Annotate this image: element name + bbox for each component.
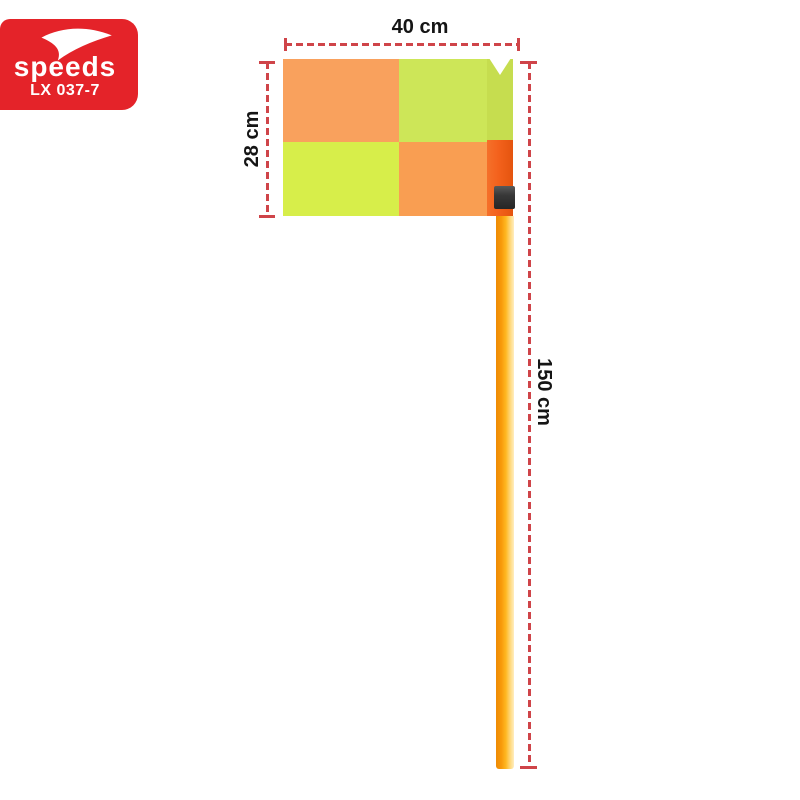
corner-flag: [283, 59, 513, 216]
product-image: speeds LX 037-7 40 cm 28 cm 150 cm: [0, 0, 800, 800]
brand-model-number: LX 037-7: [0, 83, 130, 99]
flag-quadrant-bottom-right: [399, 142, 487, 216]
pole-height-label: 150 cm: [533, 327, 555, 457]
height-dimension-tick-top: [259, 61, 275, 64]
flag-clip-band: [494, 186, 515, 209]
brand-name: speeds: [0, 53, 130, 81]
brand-logo-badge: speeds LX 037-7: [0, 19, 138, 110]
flag-height-label: 28 cm: [241, 74, 263, 204]
flag-width-label: 40 cm: [355, 16, 485, 38]
width-dimension-tick-left: [284, 38, 287, 51]
width-dimension-line: [285, 43, 519, 46]
pole-dimension-line: [528, 62, 531, 768]
flag-top-fold-notch: [489, 59, 511, 75]
flag-quadrant-bottom-left: [283, 142, 399, 216]
height-dimension-tick-bottom: [259, 215, 275, 218]
width-dimension-tick-right: [517, 38, 520, 51]
pole-dimension-tick-bottom: [520, 766, 537, 769]
flag-quadrant-top-left: [283, 59, 399, 142]
height-dimension-line: [266, 62, 269, 217]
flag-pole: [496, 216, 514, 769]
pole-dimension-tick-top: [520, 61, 537, 64]
